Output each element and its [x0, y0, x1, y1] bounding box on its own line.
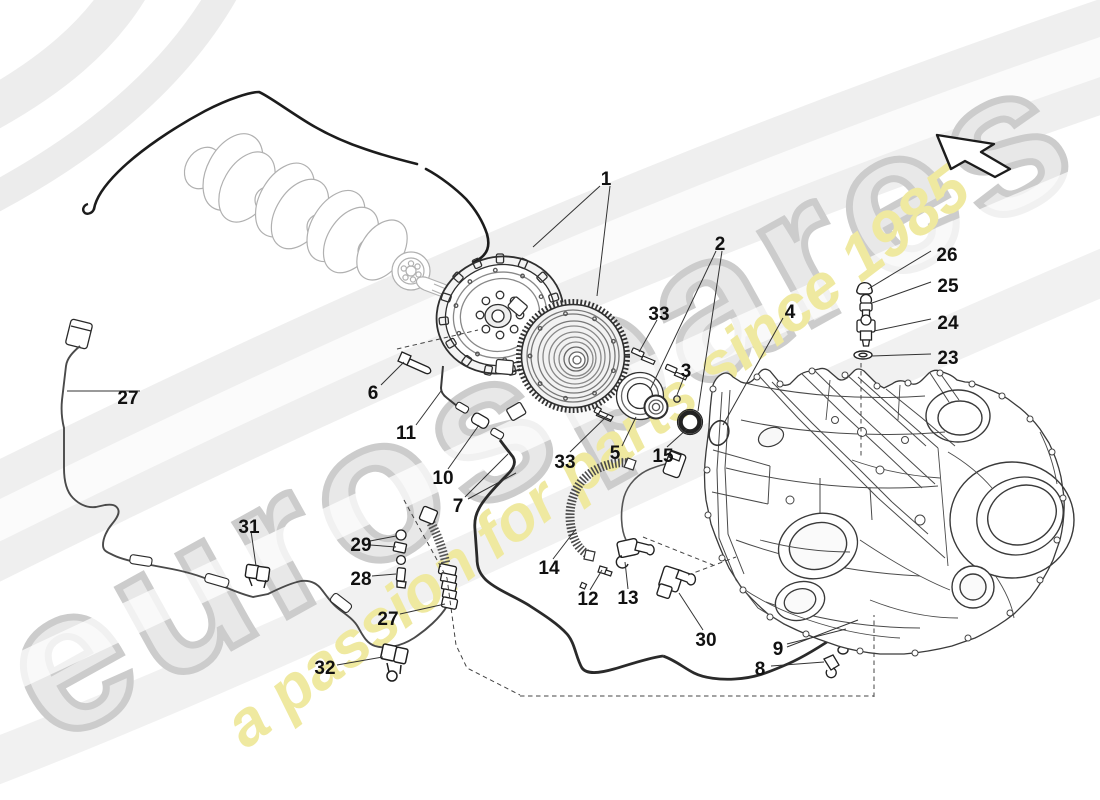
svg-text:26: 26 [936, 245, 957, 266]
svg-text:11: 11 [396, 423, 417, 444]
svg-text:13: 13 [617, 588, 638, 609]
svg-text:10: 10 [432, 468, 453, 489]
svg-text:31: 31 [238, 517, 260, 538]
svg-text:7: 7 [453, 496, 464, 517]
svg-text:30: 30 [695, 630, 716, 651]
svg-text:4: 4 [785, 302, 796, 323]
svg-text:2: 2 [715, 234, 726, 255]
svg-text:25: 25 [937, 276, 959, 297]
svg-text:33: 33 [648, 304, 669, 325]
svg-text:15: 15 [652, 446, 674, 467]
svg-text:12: 12 [577, 589, 598, 610]
svg-text:3: 3 [681, 361, 692, 382]
svg-text:32: 32 [314, 658, 335, 679]
svg-text:5: 5 [610, 443, 621, 464]
svg-text:29: 29 [350, 535, 371, 556]
svg-text:14: 14 [538, 558, 560, 579]
svg-text:33: 33 [554, 452, 575, 473]
svg-text:23: 23 [937, 348, 958, 369]
svg-text:6: 6 [368, 383, 379, 404]
svg-text:8: 8 [755, 659, 766, 680]
svg-text:28: 28 [350, 569, 371, 590]
svg-text:27: 27 [117, 388, 138, 409]
svg-text:27: 27 [377, 609, 398, 630]
svg-text:9: 9 [773, 639, 784, 660]
svg-text:24: 24 [937, 313, 959, 334]
svg-text:1: 1 [601, 169, 612, 190]
